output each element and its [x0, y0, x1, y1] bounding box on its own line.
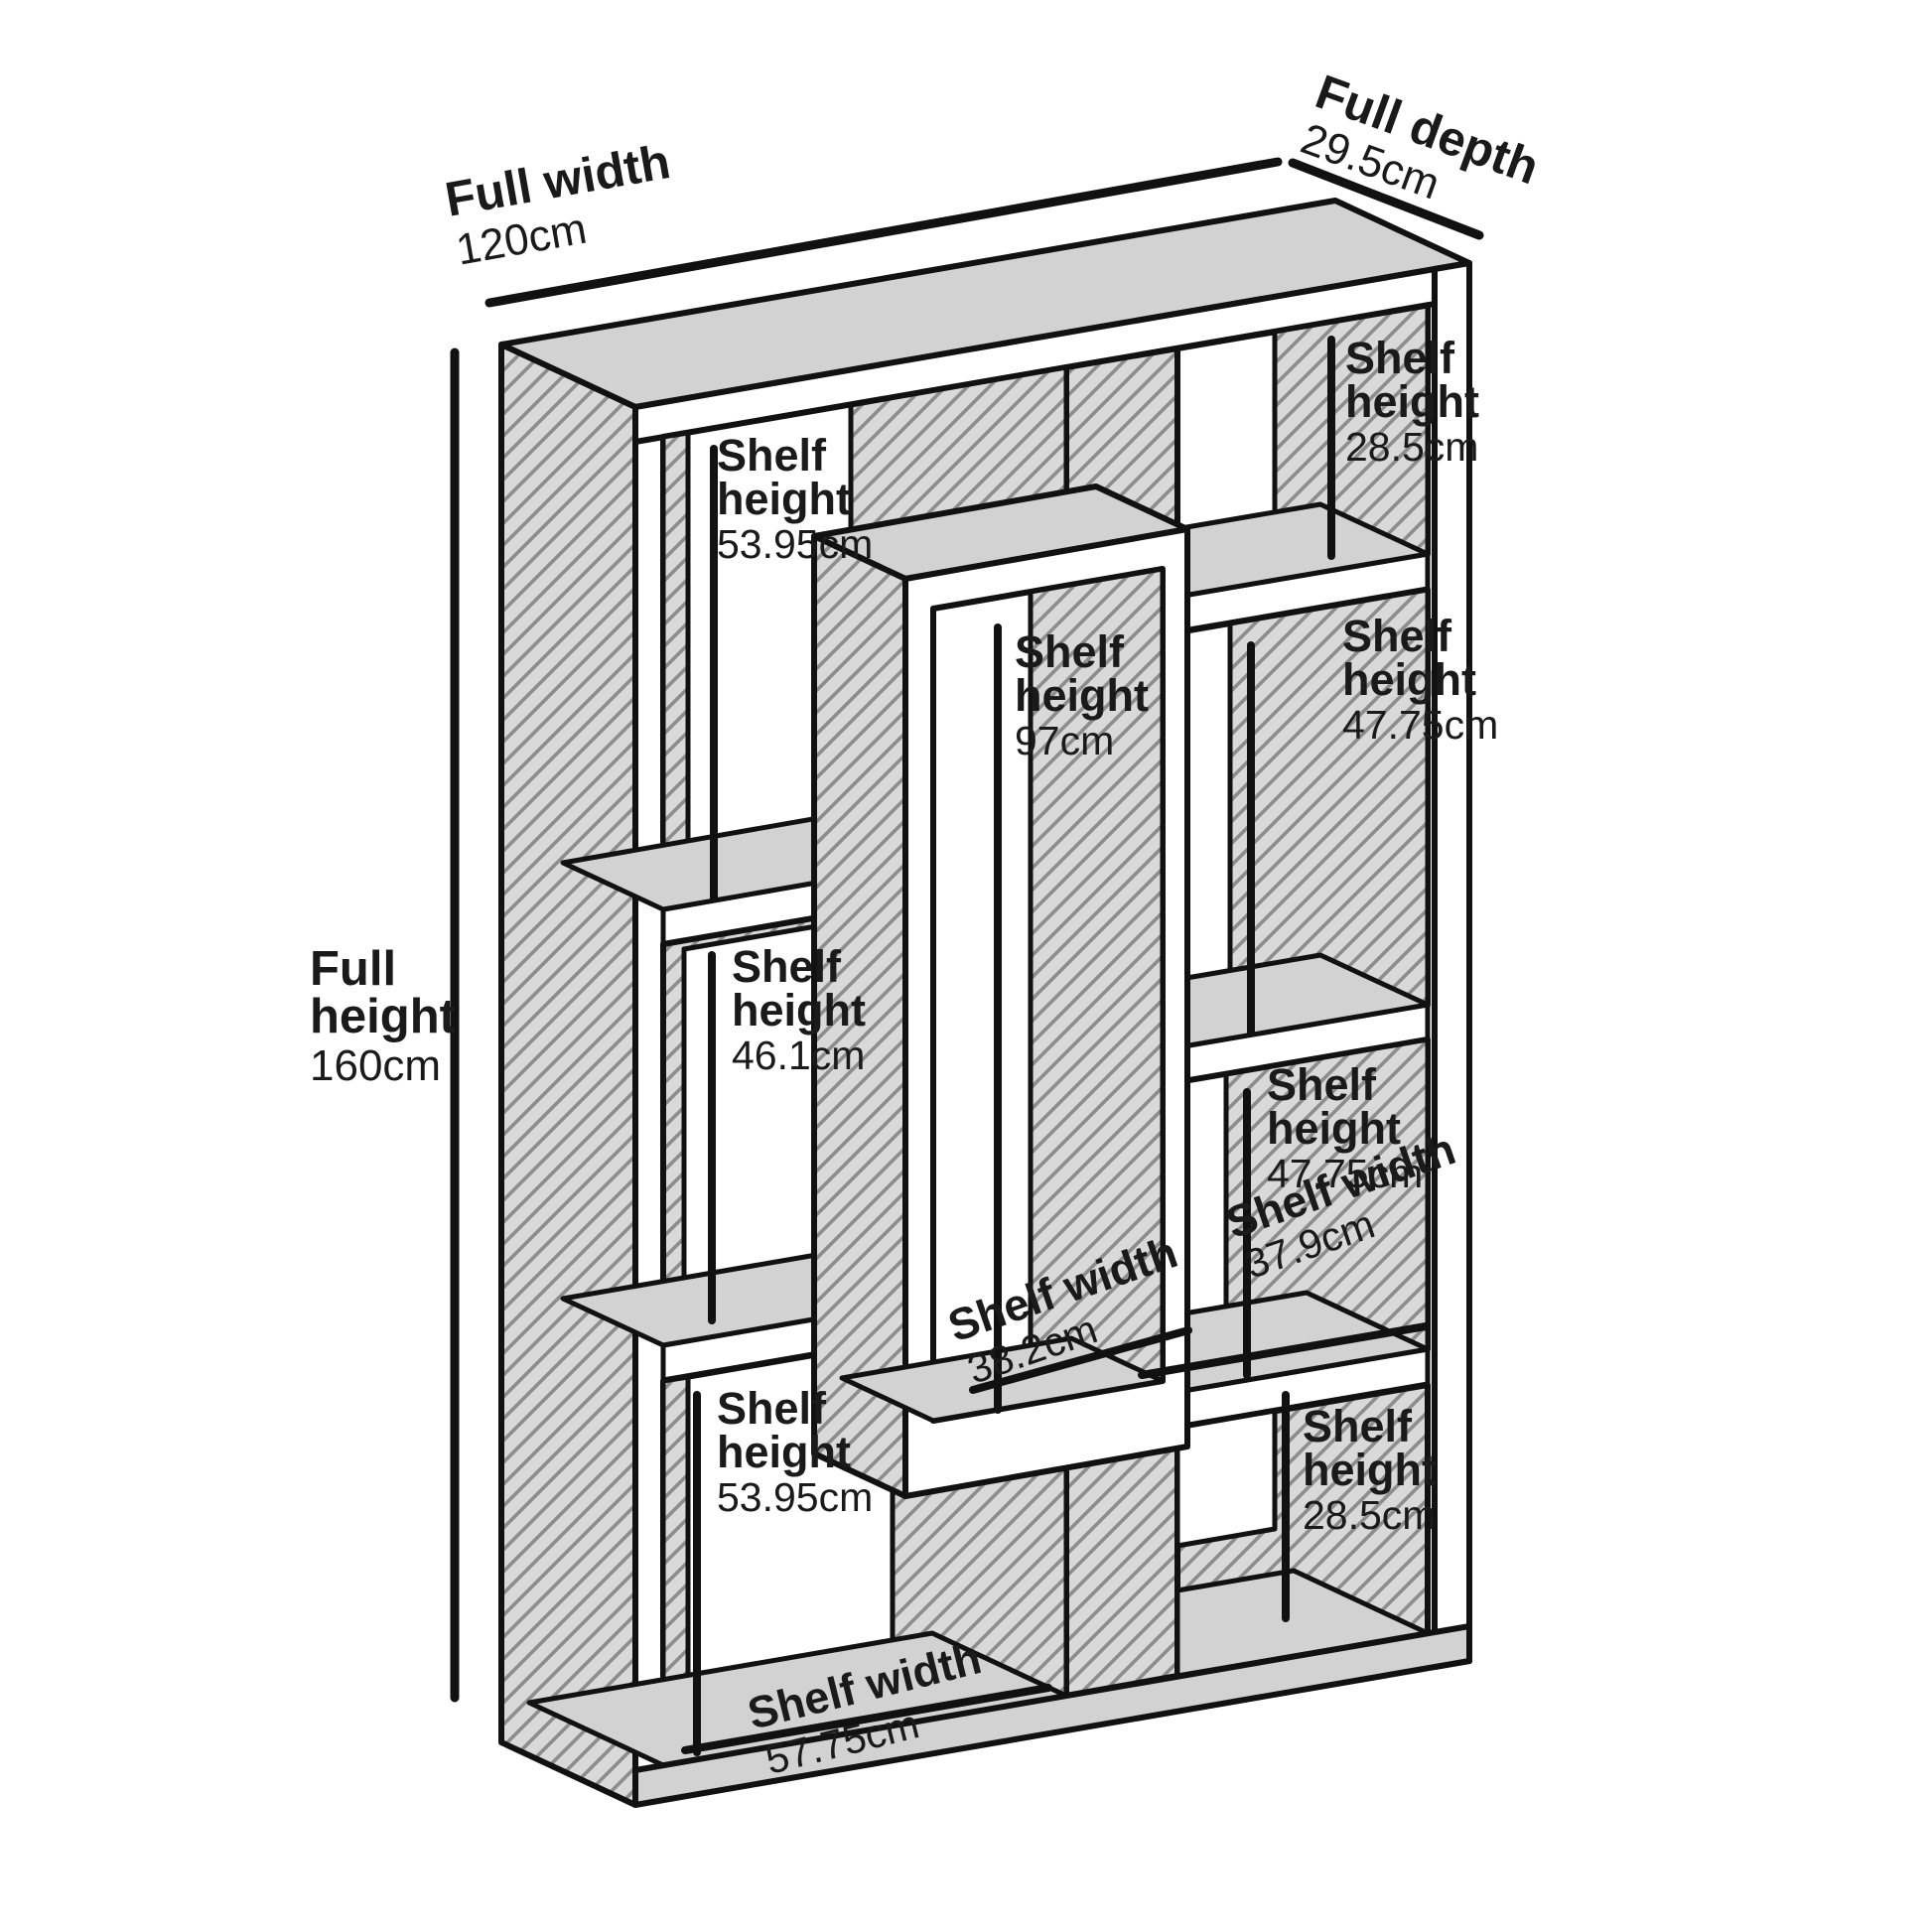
label-line: height	[1015, 670, 1149, 721]
cell-top-left-side-sliver	[663, 433, 688, 909]
full-height-title-line2: height	[310, 990, 456, 1043]
full-height-label: Full height 160cm	[310, 942, 456, 1090]
label-line: height	[717, 1427, 851, 1477]
diagram-canvas: Full width 120cm Full depth 29.5cm Full …	[0, 0, 1932, 1932]
label-value: 47.75cm	[1342, 702, 1498, 748]
left-side-panel	[501, 345, 635, 1805]
label-line: height	[1345, 376, 1479, 427]
cell-bottom-right-opening	[1177, 1411, 1275, 1546]
label-line: height	[717, 474, 851, 524]
bookcase-dimension-diagram: Full width 120cm Full depth 29.5cm Full …	[0, 0, 1932, 1932]
right-stile	[1435, 263, 1469, 1667]
label-line: height	[1303, 1445, 1437, 1495]
label-value: 46.1cm	[732, 1033, 865, 1078]
label-shelf-height-right-upper: Shelf height 47.75cm	[1342, 611, 1498, 748]
full-height-title-line1: Full	[310, 942, 396, 996]
label-value: 97cm	[1015, 718, 1114, 763]
full-height-value: 160cm	[310, 1041, 441, 1090]
label-line: height	[1342, 654, 1476, 705]
label-value: 53.95cm	[717, 1474, 873, 1520]
label-value: 28.5cm	[1303, 1492, 1436, 1538]
full-width-label: Full width 120cm	[442, 135, 683, 275]
label-value: 53.95cm	[717, 521, 873, 567]
label-value: 28.5cm	[1345, 424, 1478, 470]
label-line: height	[732, 985, 866, 1035]
